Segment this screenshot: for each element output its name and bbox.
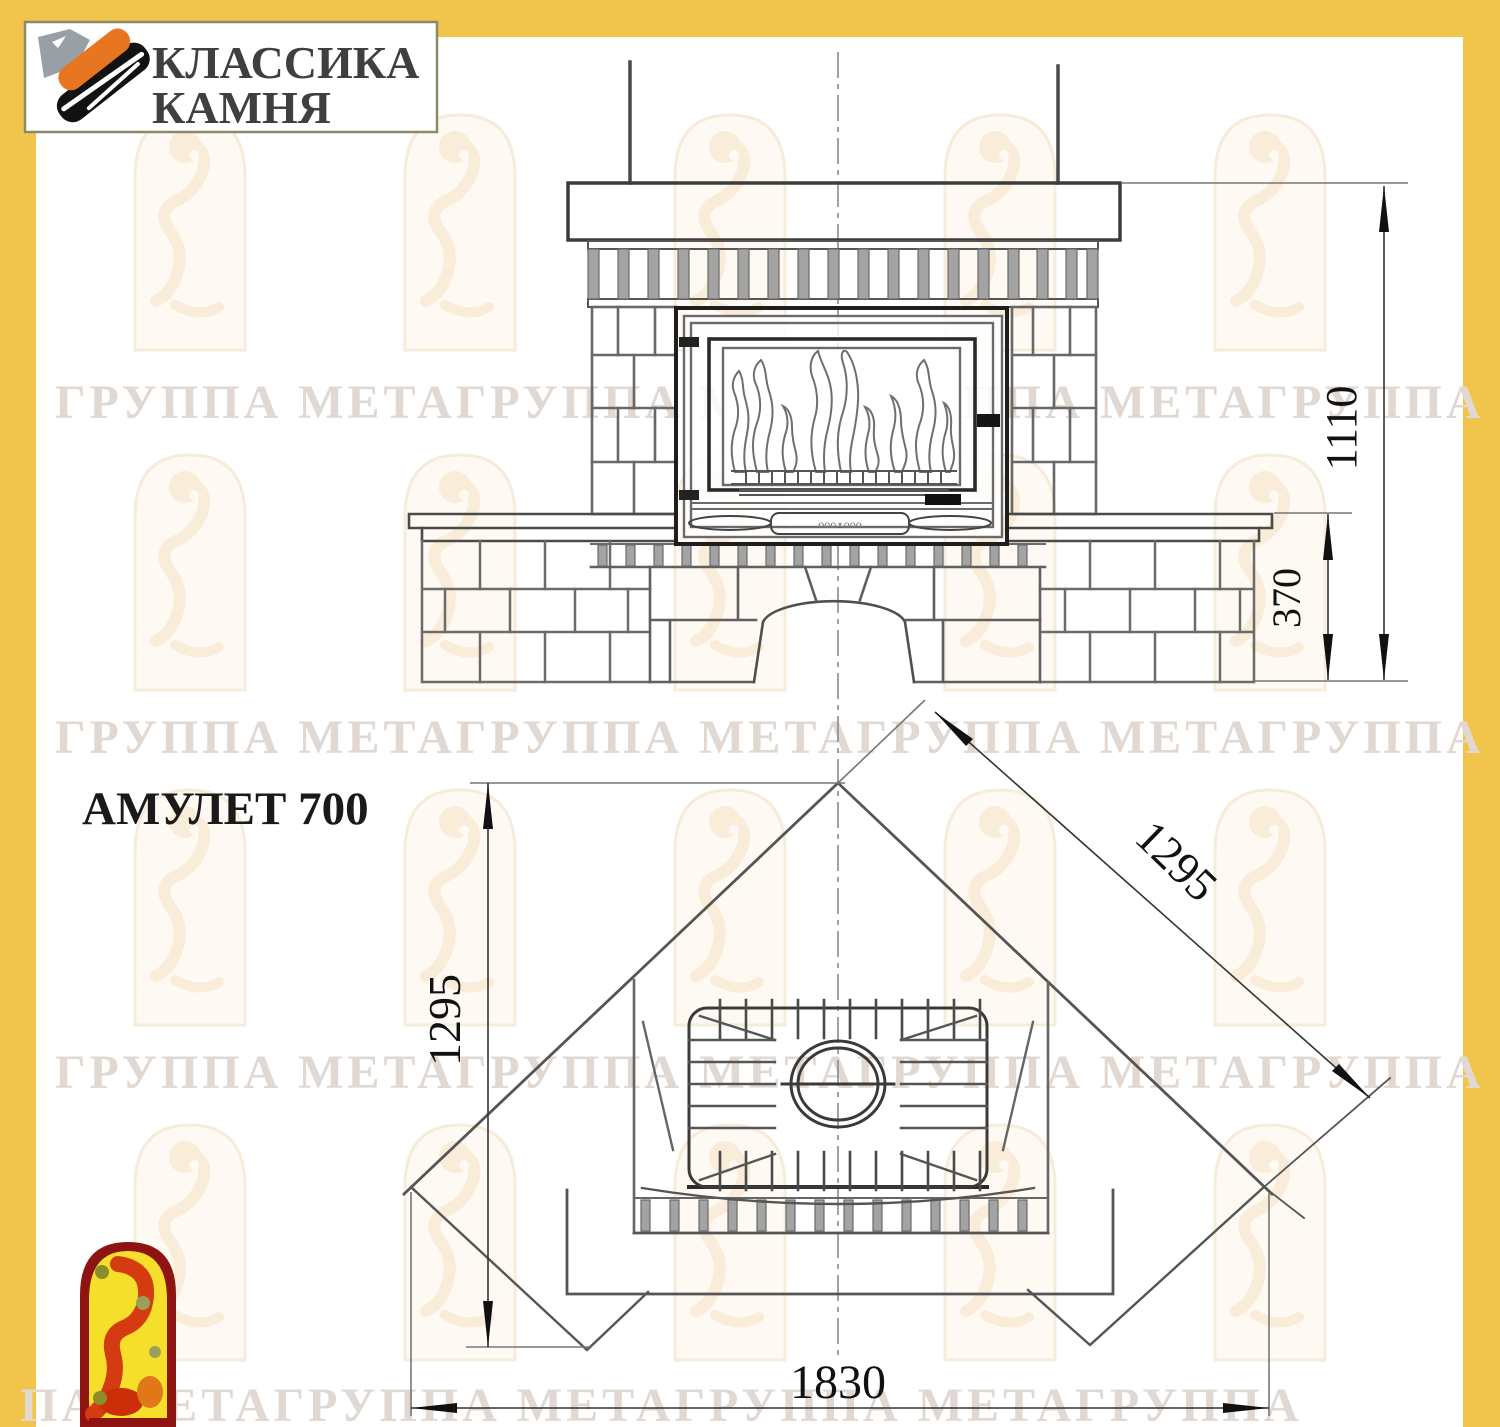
svg-text:АМУЛЕТ 700: АМУЛЕТ 700 bbox=[82, 783, 369, 835]
svg-text:1110: 1110 bbox=[1317, 386, 1366, 471]
svg-text:1295: 1295 bbox=[419, 974, 470, 1066]
svg-text:370: 370 bbox=[1264, 568, 1309, 628]
svg-text:ooo⋆ooo: ooo⋆ooo bbox=[818, 517, 862, 531]
svg-text:ПА МЕТАГРУППА МЕТАГРУППА МЕТАГ: ПА МЕТАГРУППА МЕТАГРУППА МЕТАГРУППА bbox=[20, 1379, 1303, 1427]
svg-text:КАМНЯ: КАМНЯ bbox=[152, 82, 331, 133]
svg-text:ГРУППА МЕТАГРУППА МЕТАГРУППА М: ГРУППА МЕТАГРУППА МЕТАГРУППА МЕТАГРУППА bbox=[55, 711, 1485, 764]
svg-text:КЛАССИКА: КЛАССИКА bbox=[152, 37, 419, 88]
svg-text:1830: 1830 bbox=[790, 1356, 886, 1409]
svg-text:ГРУППА МЕТАГРУППА МЕТАГРУППА М: ГРУППА МЕТАГРУППА МЕТАГРУППА МЕТАГРУППА bbox=[55, 1046, 1485, 1099]
